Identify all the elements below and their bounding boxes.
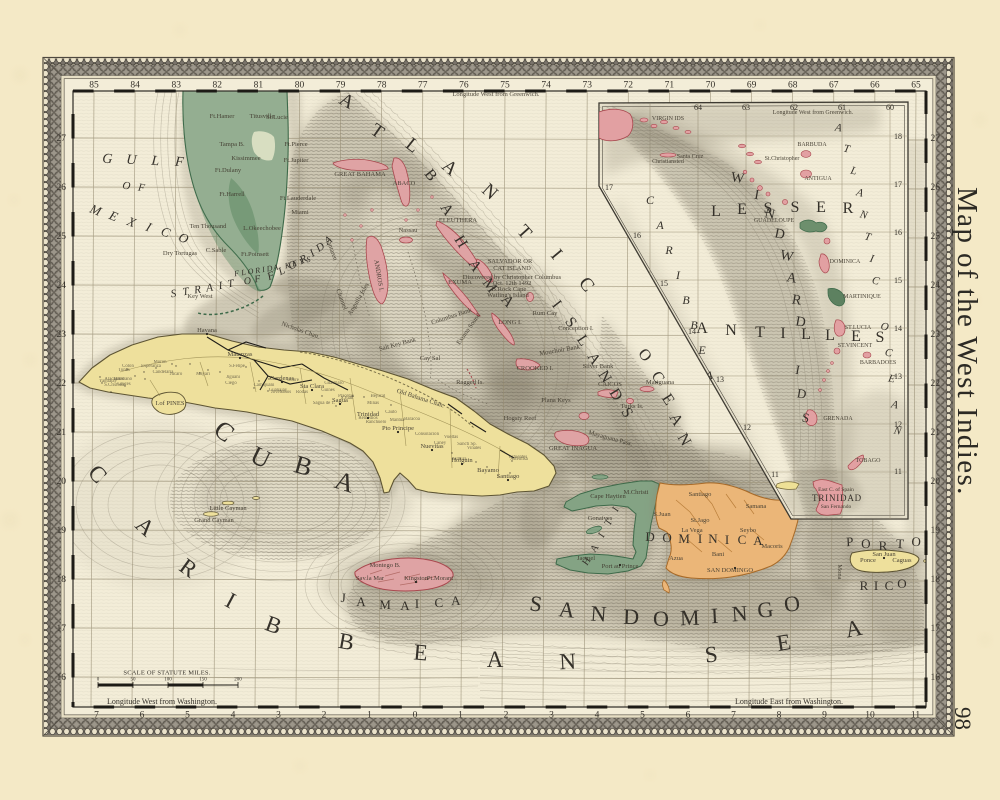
svg-text:BARBADOES: BARBADOES xyxy=(860,360,896,366)
svg-text:150: 150 xyxy=(199,678,207,683)
svg-text:20: 20 xyxy=(57,477,67,487)
svg-text:Kingston: Kingston xyxy=(404,575,429,582)
svg-text:4: 4 xyxy=(595,711,600,721)
svg-text:50: 50 xyxy=(131,678,137,683)
svg-text:TRINIDAD: TRINIDAD xyxy=(812,493,862,503)
svg-text:73: 73 xyxy=(582,81,592,91)
svg-text:19: 19 xyxy=(931,526,941,536)
svg-text:ANTIGUA: ANTIGUA xyxy=(804,176,832,182)
svg-text:Cauto: Cauto xyxy=(385,410,397,415)
svg-text:Montego B.: Montego B. xyxy=(369,562,400,569)
svg-text:Azua: Azua xyxy=(669,555,683,562)
svg-text:Tampa B.: Tampa B. xyxy=(219,141,245,148)
svg-text:Cruces: Cruces xyxy=(117,382,130,387)
svg-text:76: 76 xyxy=(459,81,469,91)
svg-text:18: 18 xyxy=(931,575,941,585)
svg-text:Vueltas: Vueltas xyxy=(444,435,458,440)
svg-text:ELEUTHERA: ELEUTHERA xyxy=(439,217,478,224)
svg-text:84: 84 xyxy=(130,81,140,91)
svg-text:San Fernando: San Fernando xyxy=(821,504,852,510)
svg-text:Dry Tortugas: Dry Tortugas xyxy=(163,250,198,257)
svg-text:N: N xyxy=(731,600,749,626)
svg-text:Little Cayman: Little Cayman xyxy=(209,505,247,512)
svg-text:I: I xyxy=(725,532,729,547)
svg-text:E: E xyxy=(737,201,747,218)
svg-text:200: 200 xyxy=(234,678,242,683)
svg-text:Vinales: Vinales xyxy=(467,446,481,451)
svg-text:Ft.Harrell: Ft.Harrell xyxy=(219,191,245,198)
svg-text:E: E xyxy=(816,199,826,216)
svg-text:Ten Thousand: Ten Thousand xyxy=(190,223,228,230)
svg-text:25: 25 xyxy=(931,232,941,242)
svg-text:TOBAGO: TOBAGO xyxy=(856,458,882,464)
svg-text:Samana: Samana xyxy=(746,503,767,510)
svg-text:P: P xyxy=(846,534,854,549)
svg-text:77: 77 xyxy=(418,81,428,91)
svg-text:Ft.Pierce: Ft.Pierce xyxy=(284,141,307,148)
svg-text:3: 3 xyxy=(276,711,281,721)
svg-text:27: 27 xyxy=(57,134,67,144)
svg-text:DOMINICA: DOMINICA xyxy=(830,259,861,265)
svg-text:G: G xyxy=(102,152,113,168)
svg-text:O: O xyxy=(653,606,669,631)
svg-text:E: E xyxy=(413,639,429,665)
svg-text:Conception I.: Conception I. xyxy=(558,325,594,332)
svg-text:64: 64 xyxy=(694,103,702,112)
svg-text:7: 7 xyxy=(731,711,736,721)
svg-text:La Vega: La Vega xyxy=(681,527,702,534)
svg-text:15: 15 xyxy=(660,279,668,288)
svg-text:Seybo: Seybo xyxy=(740,527,756,534)
svg-text:17: 17 xyxy=(605,183,613,192)
svg-text:13: 13 xyxy=(716,375,724,384)
svg-text:85: 85 xyxy=(89,81,99,91)
svg-text:CAICOS: CAICOS xyxy=(598,381,622,388)
svg-text:O: O xyxy=(122,180,132,193)
svg-text:14: 14 xyxy=(894,324,902,333)
svg-text:Artemisa: Artemisa xyxy=(510,457,528,462)
svg-text:Grand Cayman: Grand Cayman xyxy=(194,517,234,524)
svg-text:0: 0 xyxy=(413,711,418,721)
svg-text:T: T xyxy=(896,536,905,551)
svg-text:L: L xyxy=(825,327,835,344)
svg-text:14: 14 xyxy=(688,327,696,336)
svg-text:1: 1 xyxy=(458,711,463,721)
svg-text:26: 26 xyxy=(57,183,67,193)
svg-text:M: M xyxy=(680,605,700,631)
svg-text:Bani: Bani xyxy=(712,551,724,558)
svg-text:Camajuani: Camajuani xyxy=(254,383,275,388)
svg-text:O: O xyxy=(897,576,906,591)
svg-text:15: 15 xyxy=(894,276,902,285)
svg-text:Trinidad: Trinidad xyxy=(357,411,380,418)
svg-text:3: 3 xyxy=(549,711,554,721)
svg-text:C.Sable: C.Sable xyxy=(206,247,227,254)
svg-text:Christiansted: Christiansted xyxy=(652,159,684,165)
svg-text:66: 66 xyxy=(870,81,880,91)
svg-text:L: L xyxy=(150,154,160,170)
svg-text:Ponce: Ponce xyxy=(860,557,876,564)
svg-text:Titusville: Titusville xyxy=(250,113,275,120)
svg-text:Minas: Minas xyxy=(367,401,379,406)
svg-text:BARBUDA: BARBUDA xyxy=(797,142,827,148)
svg-text:83: 83 xyxy=(171,81,181,91)
svg-text:G: G xyxy=(756,596,775,623)
svg-text:Ft.Lauderdale: Ft.Lauderdale xyxy=(280,195,316,202)
svg-text:Sav.la Mar: Sav.la Mar xyxy=(356,575,385,582)
svg-text:S.Felipe: S.Felipe xyxy=(229,364,245,369)
svg-text:20: 20 xyxy=(931,477,941,487)
svg-text:R: R xyxy=(664,243,673,257)
svg-text:98: 98 xyxy=(950,707,975,730)
svg-text:E: E xyxy=(697,343,706,357)
svg-text:6: 6 xyxy=(140,711,145,721)
svg-text:C: C xyxy=(885,578,894,593)
svg-text:Cape Haytien: Cape Haytien xyxy=(590,493,626,500)
svg-text:T: T xyxy=(755,324,765,341)
svg-text:24: 24 xyxy=(57,281,67,291)
svg-text:Jiguani: Jiguani xyxy=(226,375,241,380)
svg-text:22: 22 xyxy=(931,379,941,389)
svg-text:61: 61 xyxy=(838,103,846,112)
svg-text:VIRGIN IDS: VIRGIN IDS xyxy=(652,116,684,122)
svg-text:I.of PINES: I.of PINES xyxy=(156,400,185,407)
svg-text:ST.LUCIA: ST.LUCIA xyxy=(845,325,872,331)
svg-text:16: 16 xyxy=(57,673,67,683)
svg-text:9: 9 xyxy=(822,711,827,721)
svg-text:8: 8 xyxy=(777,711,782,721)
svg-text:A: A xyxy=(451,593,462,609)
svg-text:24: 24 xyxy=(931,281,941,291)
svg-text:A: A xyxy=(558,596,577,623)
svg-text:4: 4 xyxy=(231,711,236,721)
svg-text:13: 13 xyxy=(894,372,902,381)
svg-text:72: 72 xyxy=(624,81,634,91)
svg-text:Ft.Poinsett: Ft.Poinsett xyxy=(241,251,269,258)
svg-text:Mona: Mona xyxy=(836,564,843,579)
svg-text:Mayari: Mayari xyxy=(196,372,211,377)
svg-text:Key West: Key West xyxy=(187,293,212,300)
svg-text:M.Christi: M.Christi xyxy=(623,489,648,496)
svg-text:LONG I.: LONG I. xyxy=(498,319,522,326)
svg-text:Guaimaro: Guaimaro xyxy=(324,381,344,386)
svg-text:71: 71 xyxy=(665,81,675,91)
svg-text:10: 10 xyxy=(865,711,875,721)
svg-text:Watling's Island: Watling's Island xyxy=(487,292,529,299)
svg-text:1: 1 xyxy=(367,711,372,721)
svg-text:21: 21 xyxy=(931,428,941,438)
svg-text:A: A xyxy=(400,598,410,613)
svg-text:19: 19 xyxy=(57,526,67,536)
svg-text:C: C xyxy=(646,193,655,207)
svg-text:I: I xyxy=(415,596,420,611)
svg-text:Moron: Moron xyxy=(153,360,167,365)
svg-text:68: 68 xyxy=(788,81,798,91)
svg-text:A: A xyxy=(655,218,664,232)
svg-text:17: 17 xyxy=(57,624,67,634)
svg-text:Candelaria: Candelaria xyxy=(153,370,175,375)
svg-text:D: D xyxy=(623,604,640,630)
svg-text:79: 79 xyxy=(336,81,346,91)
svg-text:Jacmel: Jacmel xyxy=(577,555,595,562)
svg-text:Ft.Dulany: Ft.Dulany xyxy=(215,167,242,174)
svg-text:M: M xyxy=(379,597,391,612)
svg-text:N: N xyxy=(559,649,577,675)
svg-text:78: 78 xyxy=(377,81,387,91)
svg-text:74: 74 xyxy=(541,81,551,91)
svg-text:St.Christopher: St.Christopher xyxy=(765,156,800,162)
svg-text:A: A xyxy=(487,647,504,672)
svg-text:Consolacion: Consolacion xyxy=(415,432,440,437)
svg-text:12: 12 xyxy=(743,423,751,432)
svg-text:82: 82 xyxy=(213,81,223,91)
svg-text:70: 70 xyxy=(706,81,716,91)
svg-text:East C. of Spain: East C. of Spain xyxy=(818,486,854,493)
svg-text:21: 21 xyxy=(57,428,67,438)
svg-text:L: L xyxy=(711,203,721,220)
svg-text:16: 16 xyxy=(894,228,902,237)
svg-text:S: S xyxy=(791,199,800,216)
svg-text:Guanajay: Guanajay xyxy=(269,388,288,393)
svg-text:B: B xyxy=(682,293,690,307)
svg-text:Bejucal: Bejucal xyxy=(371,394,386,399)
svg-text:Santiago: Santiago xyxy=(689,491,712,498)
svg-text:St.Jago: St.Jago xyxy=(691,517,710,524)
svg-text:Silver Bank: Silver Bank xyxy=(583,363,615,370)
svg-text:26: 26 xyxy=(931,183,941,193)
svg-text:Ft.Jupiter: Ft.Jupiter xyxy=(284,157,310,164)
svg-text:81: 81 xyxy=(254,81,264,91)
svg-text:C: C xyxy=(738,532,747,547)
svg-text:100: 100 xyxy=(164,678,172,683)
svg-text:O: O xyxy=(662,530,672,545)
svg-text:Pt.Morant: Pt.Morant xyxy=(427,575,453,582)
svg-text:Map of the West Indies.: Map of the West Indies. xyxy=(951,187,983,496)
svg-text:5: 5 xyxy=(185,711,190,721)
svg-text:60: 60 xyxy=(886,103,894,112)
svg-text:R: R xyxy=(860,578,869,593)
svg-text:Ciego: Ciego xyxy=(225,381,237,386)
svg-text:CAT ISLAND: CAT ISLAND xyxy=(493,265,531,272)
svg-text:Holguin: Holguin xyxy=(451,457,473,464)
svg-text:Bayamo: Bayamo xyxy=(477,467,499,474)
svg-text:Baracoa: Baracoa xyxy=(404,417,421,422)
svg-text:Nassau: Nassau xyxy=(399,227,419,234)
svg-text:GUADELOUPE: GUADELOUPE xyxy=(754,218,795,224)
svg-text:J: J xyxy=(340,590,346,605)
svg-text:I: I xyxy=(710,603,719,628)
svg-text:Macoris: Macoris xyxy=(761,543,783,550)
svg-text:18: 18 xyxy=(894,132,902,141)
svg-text:O: O xyxy=(861,536,871,551)
svg-text:ABACO: ABACO xyxy=(393,180,416,187)
svg-text:D: D xyxy=(645,529,655,544)
svg-text:Rum Cay: Rum Cay xyxy=(533,310,558,317)
svg-text:11: 11 xyxy=(894,467,902,476)
svg-text:O: O xyxy=(911,534,921,549)
svg-text:GRENADA: GRENADA xyxy=(823,416,853,422)
svg-text:17: 17 xyxy=(894,180,902,189)
svg-text:Gonaives: Gonaives xyxy=(588,515,613,522)
svg-text:Rodas: Rodas xyxy=(296,390,308,395)
svg-text:5: 5 xyxy=(640,711,645,721)
svg-text:2: 2 xyxy=(504,711,509,721)
svg-text:Ft.Hamer: Ft.Hamer xyxy=(210,113,236,120)
svg-text:Longitude East from Washington: Longitude East from Washington. xyxy=(735,697,843,706)
svg-text:69: 69 xyxy=(747,81,757,91)
svg-text:A: A xyxy=(356,594,367,609)
svg-text:11: 11 xyxy=(771,470,779,479)
svg-text:Miami: Miami xyxy=(291,209,309,216)
svg-text:62: 62 xyxy=(790,103,798,112)
svg-text:23: 23 xyxy=(57,330,67,340)
svg-text:N: N xyxy=(708,531,718,546)
svg-text:S.Juan: S.Juan xyxy=(653,511,671,518)
svg-text:Kissimmee: Kissimmee xyxy=(231,155,260,162)
svg-text:Mantua: Mantua xyxy=(390,418,406,423)
svg-text:Tunas: Tunas xyxy=(118,368,130,373)
svg-text:75: 75 xyxy=(500,81,510,91)
svg-text:N: N xyxy=(725,322,737,339)
svg-text:17: 17 xyxy=(931,624,941,634)
svg-text:Caguas: Caguas xyxy=(892,557,912,564)
svg-text:GREAT INAGUA: GREAT INAGUA xyxy=(549,445,597,452)
svg-text:CROOKED I.: CROOKED I. xyxy=(517,365,554,372)
svg-text:ST.VINCENT: ST.VINCENT xyxy=(838,343,873,349)
svg-text:11: 11 xyxy=(911,711,920,721)
svg-text:67: 67 xyxy=(829,81,839,91)
svg-text:80: 80 xyxy=(295,81,305,91)
svg-text:23: 23 xyxy=(931,330,941,340)
svg-text:Hogsty Reef: Hogsty Reef xyxy=(504,415,538,422)
svg-text:Ragged Is.: Ragged Is. xyxy=(456,379,484,386)
svg-text:65: 65 xyxy=(911,81,921,91)
svg-text:Mariguana: Mariguana xyxy=(646,379,674,386)
svg-text:S: S xyxy=(704,641,719,667)
svg-text:SAN DOMINGO: SAN DOMINGO xyxy=(707,567,753,574)
svg-text:Longitude West from Washington: Longitude West from Washington. xyxy=(107,697,217,706)
svg-text:SCALE OF STATUTE MILES.: SCALE OF STATUTE MILES. xyxy=(123,670,210,677)
svg-text:16: 16 xyxy=(931,673,941,683)
svg-text:B.Rock Cape: B.Rock Cape xyxy=(492,286,527,293)
svg-text:27: 27 xyxy=(931,134,941,144)
svg-text:18: 18 xyxy=(57,575,67,585)
svg-text:C: C xyxy=(434,595,443,610)
svg-text:L.Okeechobee: L.Okeechobee xyxy=(243,225,281,232)
svg-text:R: R xyxy=(843,200,854,217)
svg-text:6: 6 xyxy=(686,711,691,721)
svg-text:12: 12 xyxy=(894,420,902,429)
svg-text:N: N xyxy=(590,600,608,626)
svg-text:2: 2 xyxy=(322,711,327,721)
svg-text:GREAT BAHAMA: GREAT BAHAMA xyxy=(334,171,386,178)
svg-text:I: I xyxy=(780,325,785,342)
svg-text:22: 22 xyxy=(57,379,67,389)
svg-text:A: A xyxy=(696,320,708,337)
svg-text:MARTINIQUE: MARTINIQUE xyxy=(843,294,881,300)
svg-text:Cay Sal: Cay Sal xyxy=(420,355,441,362)
svg-text:Turks Is.: Turks Is. xyxy=(621,403,644,410)
svg-text:7: 7 xyxy=(94,711,99,721)
svg-text:F: F xyxy=(173,155,184,171)
svg-text:Plana Keys: Plana Keys xyxy=(541,397,571,404)
svg-text:I: I xyxy=(874,578,878,593)
svg-text:63: 63 xyxy=(742,103,750,112)
svg-text:SALVADOR OR: SALVADOR OR xyxy=(488,258,533,265)
svg-text:16: 16 xyxy=(633,231,641,240)
svg-text:25: 25 xyxy=(57,232,67,242)
